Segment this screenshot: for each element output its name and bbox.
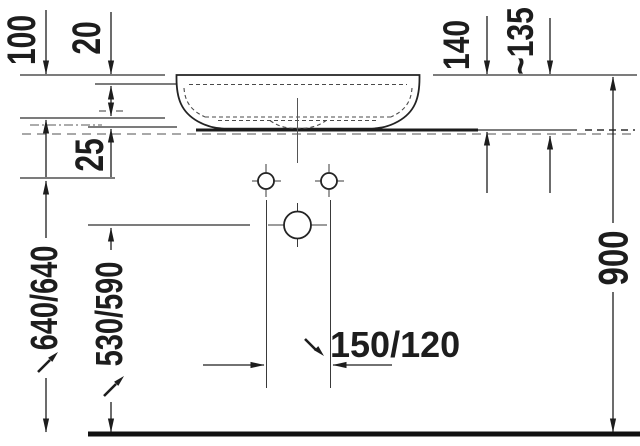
washbasin-bowl — [177, 75, 479, 163]
drain-hole — [268, 203, 327, 247]
technical-drawing-canvas: 100 20 140 ~135 25 640/640 530/590 900 1… — [0, 0, 640, 446]
dim-label-530-590: 530/590 — [89, 262, 130, 367]
dim-label-20: 20 — [65, 21, 109, 54]
dim-label-640-640: 640/640 — [24, 246, 65, 351]
drain-circle — [284, 212, 311, 239]
dimension-labels: 100 20 140 ~135 25 640/640 530/590 900 1… — [0, 7, 636, 366]
dim-label-900: 900 — [590, 230, 636, 285]
tap-hole-right — [321, 173, 337, 189]
dim-label-140: 140 — [436, 20, 478, 70]
leader-arrows — [38, 339, 324, 396]
dim-label-150-120: 150/120 — [330, 324, 460, 365]
dim-label-135: ~135 — [500, 7, 542, 75]
dim-label-25: 25 — [68, 138, 112, 171]
washbasin-dimension-diagram: 100 20 140 ~135 25 640/640 530/590 900 1… — [0, 0, 640, 446]
leader-arrow-tap-spacing — [305, 339, 324, 356]
tap-hole-left — [258, 173, 274, 189]
leader-arrow-drain-height — [104, 376, 124, 396]
leader-arrow-console-height — [38, 352, 58, 372]
dim-label-100: 100 — [0, 15, 44, 65]
